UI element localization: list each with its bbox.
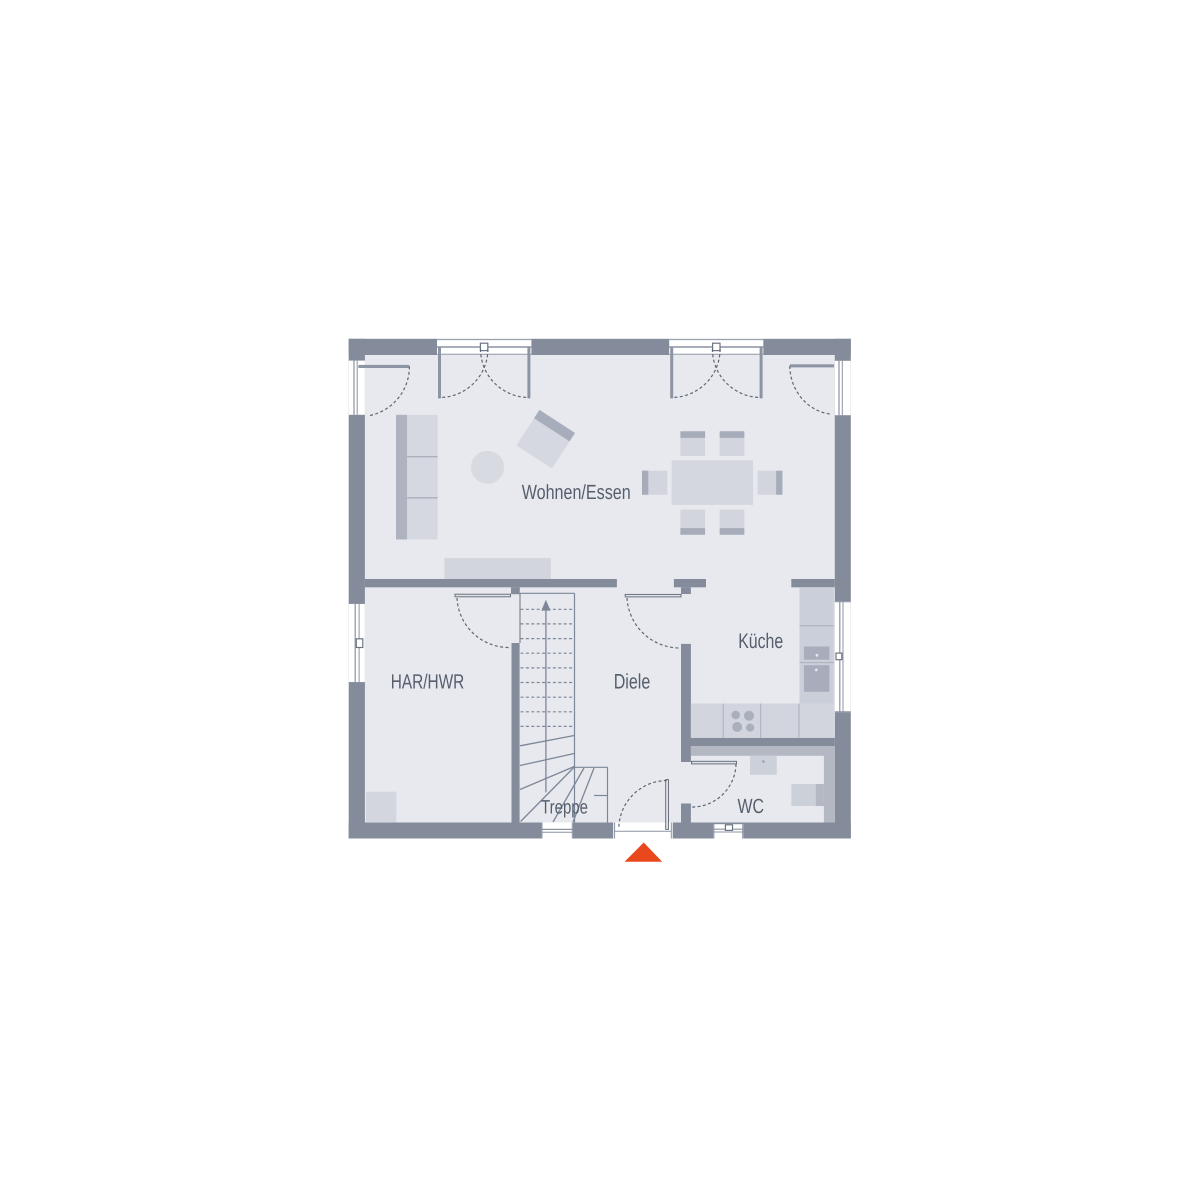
svg-text:Küche: Küche: [738, 630, 783, 653]
svg-text:HAR/HWR: HAR/HWR: [391, 671, 465, 694]
svg-text:Diele: Diele: [614, 671, 651, 694]
svg-text:WC: WC: [738, 795, 765, 818]
svg-text:Wohnen/Essen: Wohnen/Essen: [522, 481, 631, 504]
svg-text:Treppe: Treppe: [541, 797, 588, 819]
